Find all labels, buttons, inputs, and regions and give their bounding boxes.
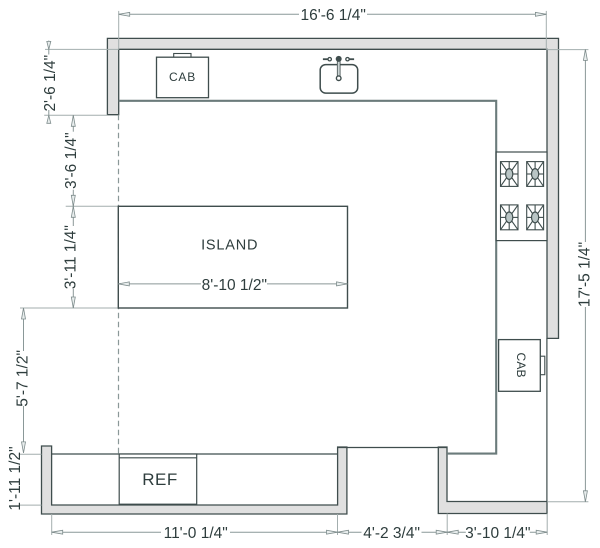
svg-text:2'-6 1/4": 2'-6 1/4" <box>42 55 59 112</box>
svg-text:1'-11 1/2": 1'-11 1/2" <box>7 446 24 510</box>
svg-text:4'-2 3/4": 4'-2 3/4" <box>363 525 420 542</box>
svg-text:17'-5 1/4": 17'-5 1/4" <box>577 242 594 307</box>
svg-text:ISLAND: ISLAND <box>201 238 258 254</box>
svg-text:CAB: CAB <box>169 70 196 84</box>
svg-text:REF: REF <box>142 470 178 489</box>
svg-text:11'-0 1/4": 11'-0 1/4" <box>164 525 228 542</box>
svg-text:8'-10 1/2": 8'-10 1/2" <box>202 277 267 294</box>
svg-text:16'-6 1/4": 16'-6 1/4" <box>301 7 366 24</box>
svg-text:5'-7 1/2": 5'-7 1/2" <box>15 350 32 407</box>
svg-text:CAB: CAB <box>514 352 528 377</box>
svg-text:3'-10 1/4": 3'-10 1/4" <box>465 525 530 542</box>
svg-text:3'-6 1/4": 3'-6 1/4" <box>63 132 80 189</box>
svg-text:3'-11 1/4": 3'-11 1/4" <box>63 225 80 289</box>
